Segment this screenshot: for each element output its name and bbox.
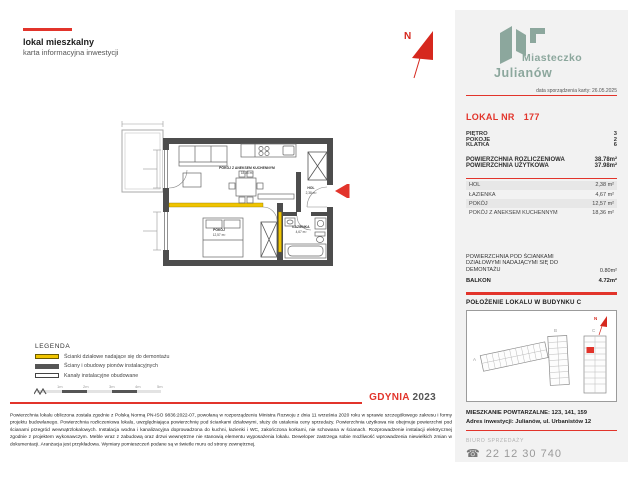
- tv-bench-icon: [258, 194, 294, 199]
- legend-label-ducts: Kanały instalacyjne obudowane: [64, 373, 138, 379]
- washer-icon: [315, 218, 326, 229]
- city-year-mark: GDYNIA 2023: [360, 392, 436, 403]
- row-value: 2,38 m²: [595, 182, 614, 188]
- header-accent-line: [23, 28, 72, 31]
- legend: LEGENDA Ścianki działowe nadające się do…: [35, 343, 169, 379]
- scale-tick: 5m: [157, 384, 163, 389]
- room-label-bedroom: POKÓJ: [213, 227, 225, 232]
- bathtub-icon: [285, 244, 326, 258]
- north-arrow-icon: N: [400, 18, 440, 80]
- table-row-living: POKÓJ Z ANEKSEM KUCHENNYM 18,36 m²: [466, 208, 617, 217]
- site-plan-box: A B: [466, 310, 617, 402]
- attr-row-staircase: KLATKA 6: [466, 143, 617, 149]
- building-c-label: C: [592, 328, 596, 333]
- unit-number-row: LOKAL NR177: [466, 112, 617, 122]
- unit-number-label: LOKAL NR: [466, 112, 515, 122]
- sofa-icon: [179, 146, 227, 166]
- legend-item-demountable: Ścianki działowe nadające się do demonta…: [35, 354, 169, 360]
- site-north-letter: N: [594, 316, 597, 321]
- repeat-units-info: MIESZKANIE POWTARZALNE: 123, 141, 159: [466, 410, 617, 416]
- dimension-markers-left: [143, 150, 161, 250]
- partition-value: 0.80m²: [600, 268, 617, 274]
- area-value: 37.98m²: [595, 163, 617, 169]
- row-value: 4,67 m²: [595, 192, 614, 198]
- site-north-arrow-icon: N: [594, 316, 607, 335]
- partition-area-row: POWIERZCHNIA POD ŚCIANKAMI DZIAŁOWYMI NA…: [466, 254, 617, 275]
- scale-tick: 3m: [109, 384, 115, 389]
- site-plan: A B: [467, 311, 616, 401]
- panel-rule-thick: [466, 292, 617, 295]
- legend-item-walls: Ściany i obudowy pionów instalacyjnych: [35, 363, 169, 369]
- balcony-label: BALKON: [466, 278, 491, 284]
- panel-rule: [466, 430, 617, 432]
- north-letter: N: [404, 31, 411, 42]
- room-label-hall: HOL: [307, 186, 314, 190]
- bed-icon: [203, 218, 243, 257]
- area-row-usable: POWIERZCHNIA UŻYTKOWA 37.98m²: [466, 163, 617, 169]
- row-label: HOL: [469, 182, 480, 188]
- scale-tick: 4m: [135, 384, 141, 389]
- panel-rule: [466, 178, 617, 180]
- room-label-bathroom: ŁAZIENKA: [292, 225, 310, 229]
- legend-title: LEGENDA: [35, 343, 169, 350]
- sales-office-label: BIURO SPRZEDAŻY: [466, 438, 617, 444]
- north-arrow-stem: [414, 58, 420, 78]
- info-panel: Miasteczko Julianów data sporządzenia ka…: [455, 10, 628, 462]
- scale-bar: 1m 2m 3m 4m 5m: [37, 384, 167, 396]
- bedroom-window: [163, 212, 169, 250]
- dimension-marker-top: [122, 121, 163, 127]
- attr-value: 6: [614, 143, 617, 149]
- brand-name-line2: Julianów: [494, 66, 552, 80]
- unit-attributes: PIĘTRO 3 POKOJE 2 KLATKA 6: [466, 132, 617, 149]
- side-table-icon: [183, 173, 201, 187]
- building-b-label: B: [554, 328, 557, 333]
- area-label: POWIERZCHNIA UŻYTKOWA: [466, 163, 549, 169]
- area-summary: POWIERZCHNIA ROZLICZENIOWA 38.78m² POWIE…: [466, 157, 617, 170]
- legal-disclaimer: Powierzchnia lokalu obliczona została zg…: [10, 412, 452, 448]
- scale-bar-segment: [112, 390, 137, 393]
- row-label: POKÓJ Z ANEKSEM KUCHENNYM: [469, 210, 558, 216]
- legend-item-ducts: Kanały instalacyjne obudowane: [35, 373, 169, 379]
- unit-location-marker: [587, 347, 595, 353]
- room-table: HOL 2,38 m² ŁAZIENKA 4,67 m² POKÓJ 12,57…: [466, 181, 617, 218]
- balcony-area-row: BALKON 4.72m²: [466, 278, 617, 284]
- legend-label-demountable: Ścianki działowe nadające się do demonta…: [64, 354, 169, 360]
- page: lokal mieszkalny karta informacyjna inwe…: [0, 0, 640, 480]
- phone-number: 22 12 30 740: [486, 448, 562, 460]
- scale-tick: 2m: [83, 384, 89, 389]
- partition-label: POWIERZCHNIA POD ŚCIANKAMI DZIAŁOWYMI NA…: [466, 254, 572, 275]
- table-row-bedroom: POKÓJ 12,57 m²: [466, 199, 617, 208]
- row-label: ŁAZIENKA: [469, 192, 496, 198]
- city-label: GDYNIA: [369, 392, 409, 403]
- room-area-living: 18,36 m²: [241, 171, 254, 175]
- card-date: data sporządzenia karty: 26.05.2025: [466, 88, 617, 94]
- toilet-icon: [315, 232, 325, 243]
- extra-areas: POWIERZCHNIA POD ŚCIANKAMI DZIAŁOWYMI NA…: [466, 254, 617, 285]
- interior-walls: [277, 172, 327, 260]
- unit-number-value: 177: [524, 112, 540, 122]
- building-b: [548, 335, 570, 385]
- footer-divider-line: [10, 402, 362, 404]
- table-row-bathroom: ŁAZIENKA 4,67 m²: [466, 190, 617, 199]
- building-a-label: A: [473, 357, 476, 362]
- location-section-title: POŁOŻENIE LOKALU W BUDYNKU C: [466, 299, 617, 306]
- investment-address: Adres inwestycji: Julianów, ul. Urbanist…: [466, 419, 617, 425]
- legend-swatch-demountable: [35, 354, 59, 359]
- row-value: 12,57 m²: [592, 201, 614, 207]
- phone-row: ☎ 22 12 30 740: [466, 447, 617, 460]
- attr-label: KLATKA: [466, 143, 489, 149]
- balcony-value: 4.72m²: [599, 278, 617, 284]
- legend-label-walls: Ściany i obudowy pionów instalacyjnych: [64, 363, 158, 369]
- phone-icon: ☎: [466, 447, 480, 460]
- legend-swatch-ducts: [35, 373, 59, 378]
- room-area-bathroom: 4,67 m²: [296, 230, 307, 234]
- entrance-marker-icon: [335, 184, 350, 198]
- room-area-bedroom: 12,57 m²: [213, 233, 226, 237]
- scale-bar-segment: [62, 390, 87, 393]
- brand-name-line1: Miasteczko: [522, 52, 582, 64]
- brand-logo: Miasteczko Julianów: [466, 10, 617, 88]
- floor-plan: POKÓJ Z ANEKSEM KUCHENNYM 18,36 m² HOL 2…: [95, 100, 455, 315]
- legend-swatch-walls: [35, 364, 59, 369]
- kitchen-icons: [241, 144, 296, 157]
- year-label: 2023: [413, 392, 436, 403]
- scale-zigzag-icon: [34, 388, 48, 395]
- row-label: POKÓJ: [469, 201, 488, 207]
- balcony-door-window: [163, 150, 169, 188]
- door-arcs: [169, 170, 327, 230]
- table-row-hall: HOL 2,38 m²: [466, 181, 617, 190]
- building-a: [480, 342, 548, 371]
- card-subtitle: karta informacyjna inwestycji: [23, 48, 118, 57]
- card-title: lokal mieszkalny: [23, 37, 118, 47]
- card-header: lokal mieszkalny karta informacyjna inwe…: [23, 28, 118, 57]
- scale-bar-track: [37, 390, 161, 393]
- scale-tick: 1m: [57, 384, 63, 389]
- room-area-hall: 2,38 m²: [306, 191, 317, 195]
- north-arrow-flag: [412, 31, 433, 60]
- room-label-living: POKÓJ Z ANEKSEM KUCHENNYM: [219, 165, 275, 170]
- row-value: 18,36 m²: [592, 210, 614, 216]
- building-c: [584, 336, 606, 393]
- panel-rule: [466, 95, 617, 96]
